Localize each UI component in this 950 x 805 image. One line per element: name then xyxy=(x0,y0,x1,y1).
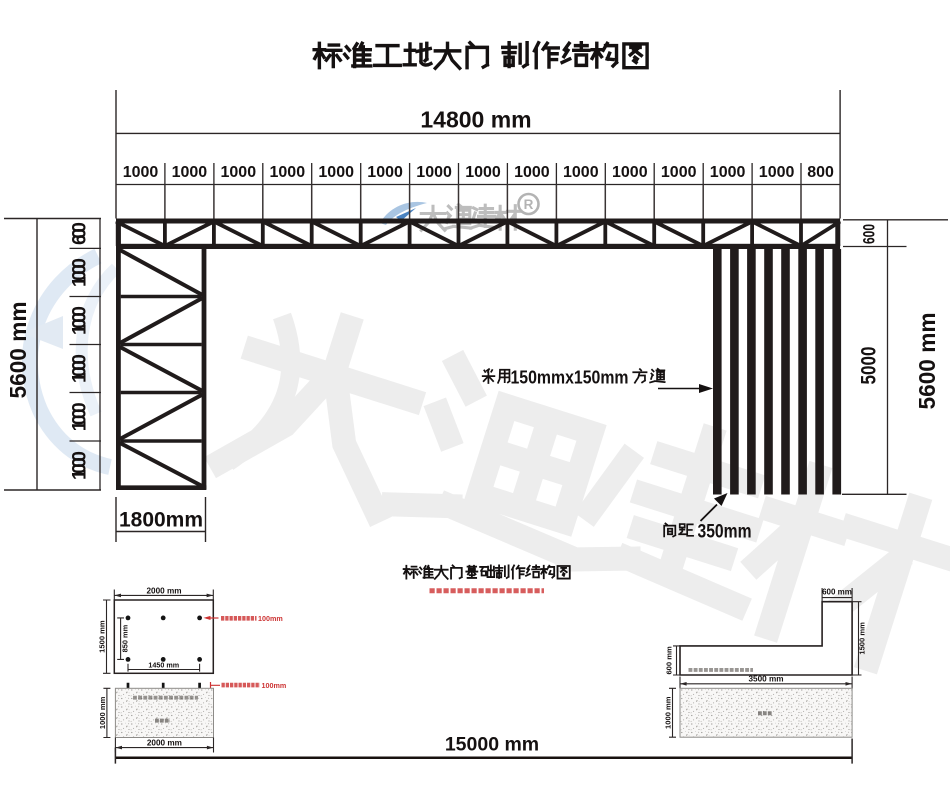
svg-text:1000: 1000 xyxy=(710,164,746,181)
svg-text:100mm: 100mm xyxy=(262,681,287,690)
svg-text:5600 mm: 5600 mm xyxy=(914,313,940,410)
svg-text:1000 mm: 1000 mm xyxy=(98,696,107,729)
svg-text:15000 mm: 15000 mm xyxy=(445,733,539,755)
svg-text:1000: 1000 xyxy=(563,164,599,181)
svg-text:3500 mm: 3500 mm xyxy=(748,674,783,683)
svg-text:2000 mm: 2000 mm xyxy=(147,739,182,748)
svg-text:1000: 1000 xyxy=(70,354,91,383)
svg-text:1000: 1000 xyxy=(70,402,91,431)
svg-text:1000: 1000 xyxy=(759,164,795,181)
svg-text:600 mm: 600 mm xyxy=(822,587,852,596)
svg-text:1800mm: 1800mm xyxy=(119,509,203,532)
svg-text:1450 mm: 1450 mm xyxy=(148,660,179,669)
svg-text:1000: 1000 xyxy=(661,164,697,181)
svg-text:1000: 1000 xyxy=(465,164,501,181)
svg-text:1000: 1000 xyxy=(172,164,208,181)
svg-text:150mmx150mm: 150mmx150mm xyxy=(511,368,629,388)
svg-text:600 mm: 600 mm xyxy=(665,646,674,675)
svg-text:1500 mm: 1500 mm xyxy=(98,620,107,653)
svg-text:1500 mm: 1500 mm xyxy=(858,622,867,655)
svg-text:1000: 1000 xyxy=(367,164,403,181)
svg-text:R: R xyxy=(524,197,534,212)
svg-text:1000: 1000 xyxy=(70,451,91,480)
svg-text:5600 mm: 5600 mm xyxy=(5,302,31,399)
svg-text:2000 mm: 2000 mm xyxy=(146,587,181,596)
svg-text:1000 mm: 1000 mm xyxy=(663,696,672,729)
svg-text:14800 mm: 14800 mm xyxy=(420,107,531,133)
svg-text:1000: 1000 xyxy=(318,164,354,181)
svg-text:350mm: 350mm xyxy=(698,522,752,543)
svg-text:5000: 5000 xyxy=(858,347,881,385)
svg-text:800: 800 xyxy=(807,164,834,181)
svg-text:1000: 1000 xyxy=(221,164,257,181)
svg-text:1000: 1000 xyxy=(416,164,452,181)
svg-text:1000: 1000 xyxy=(123,164,159,181)
svg-text:600: 600 xyxy=(861,224,879,244)
svg-text:1000: 1000 xyxy=(612,164,648,181)
svg-text:1000: 1000 xyxy=(70,306,91,335)
svg-text:1000: 1000 xyxy=(270,164,306,181)
svg-text:100mm: 100mm xyxy=(258,614,283,623)
svg-text:850 mm: 850 mm xyxy=(121,624,130,652)
svg-text:1000: 1000 xyxy=(70,258,91,287)
svg-text:1000: 1000 xyxy=(514,164,550,181)
svg-text:600: 600 xyxy=(70,222,91,245)
